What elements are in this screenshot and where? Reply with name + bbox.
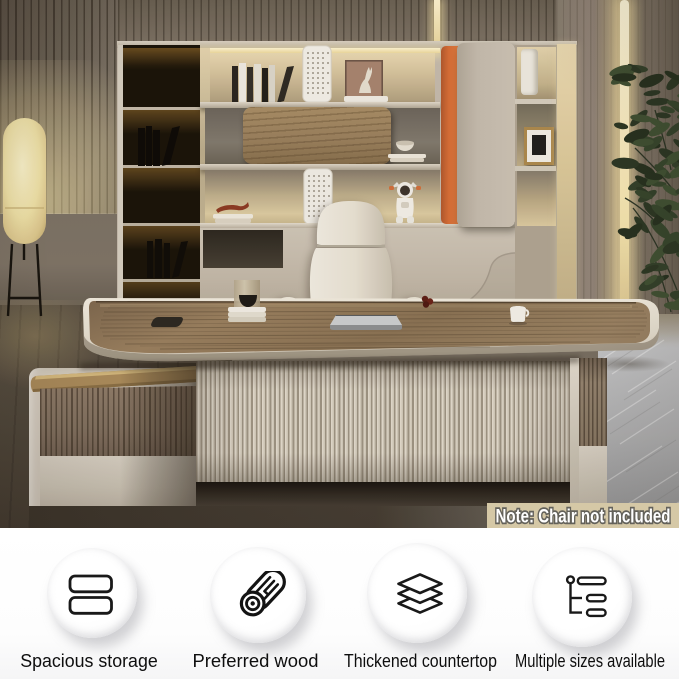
svg-text:Note: Chair not included: Note: Chair not included — [496, 507, 671, 528]
svg-text:Spacious storage: Spacious storage — [20, 651, 158, 671]
svg-text:Multiple sizes available: Multiple sizes available — [515, 651, 665, 671]
svg-text:Thickened countertop: Thickened countertop — [344, 651, 497, 671]
svg-text:Preferred wood: Preferred wood — [193, 651, 319, 671]
